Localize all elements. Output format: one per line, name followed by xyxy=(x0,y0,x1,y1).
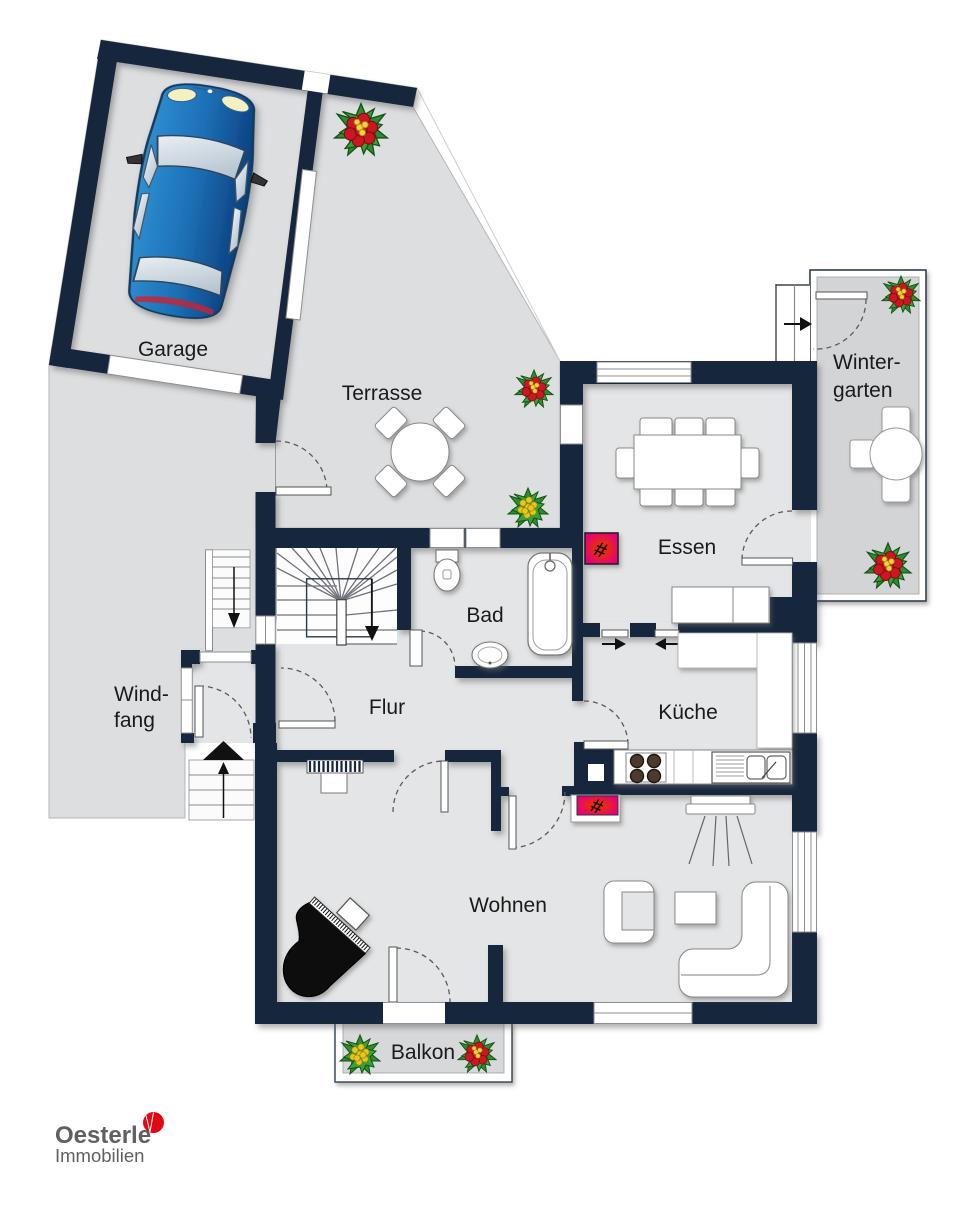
svg-text:fang: fang xyxy=(114,709,155,732)
svg-text:Wind-: Wind- xyxy=(114,683,169,706)
svg-text:Bad: Bad xyxy=(466,604,503,627)
svg-text:Essen: Essen xyxy=(658,536,716,559)
svg-text:Flur: Flur xyxy=(369,696,405,719)
svg-text:Immobilien: Immobilien xyxy=(55,1145,144,1166)
svg-text:garten: garten xyxy=(833,379,893,402)
svg-text:Winter-: Winter- xyxy=(833,351,901,374)
svg-text:Küche: Küche xyxy=(658,701,718,724)
svg-text:Terrasse: Terrasse xyxy=(342,382,423,405)
svg-text:Garage: Garage xyxy=(138,338,208,361)
svg-text:Wohnen: Wohnen xyxy=(469,894,547,917)
svg-text:Balkon: Balkon xyxy=(391,1041,455,1064)
